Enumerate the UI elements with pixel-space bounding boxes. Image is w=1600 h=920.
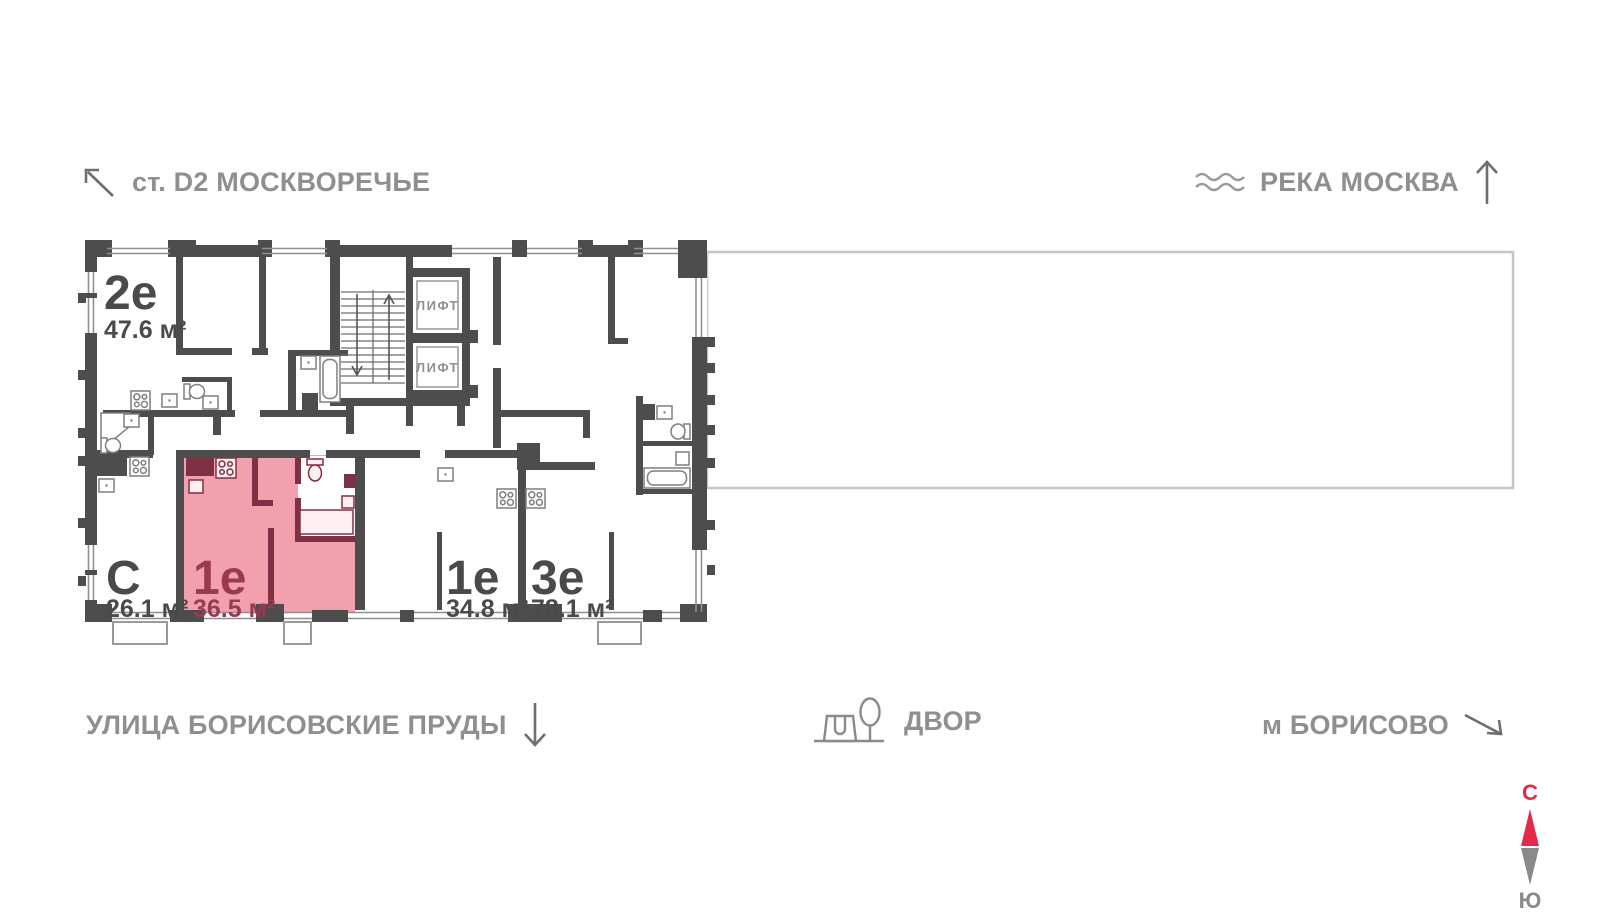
bath-icon [300, 510, 353, 534]
river-annotation: РЕКА МОСКВА [1194, 160, 1501, 204]
window-bays [113, 622, 641, 644]
unit-area: 34.8 м² [446, 595, 528, 623]
compass-needle-icon [1519, 807, 1541, 887]
washer-icon [342, 496, 354, 508]
unit-area: 36.5 м² [193, 595, 275, 623]
yard-annotation: ДВОР [812, 696, 982, 746]
metro-label: м БОРИСОВО [1262, 710, 1449, 741]
toilet-icon [101, 438, 121, 453]
yard-icon [812, 696, 886, 746]
bath-icon [644, 468, 690, 488]
compass: С Ю [1502, 782, 1558, 912]
street-label: УЛИЦА БОРИСОВСКИЕ ПРУДЫ [86, 710, 507, 741]
elevator-2: ЛИФТ [416, 347, 459, 387]
arrow-down-icon [521, 701, 549, 749]
adjacent-building-outline [707, 252, 1513, 488]
arrow-up-left-icon [80, 164, 118, 200]
stove-icon [216, 458, 236, 478]
arrow-down-right-icon [1463, 709, 1505, 741]
elevator-1-label: ЛИФТ [416, 298, 459, 313]
bath-icon [320, 356, 340, 402]
washer-icon [676, 452, 689, 465]
station-label: ст. D2 МОСКВОРЕЧЬЕ [132, 167, 430, 198]
compass-north-label: С [1522, 782, 1538, 804]
arrow-up-icon [1473, 158, 1501, 206]
toilet-icon [184, 384, 205, 399]
river-waves-icon [1194, 168, 1246, 196]
unit-area: 47.6 м² [104, 316, 186, 344]
elevator-1: ЛИФТ [416, 281, 459, 329]
floor-plan-svg: ЛИФТ ЛИФТ [0, 0, 1600, 920]
floorplan-page: ЛИФТ ЛИФТ [0, 0, 1600, 920]
compass-south-label: Ю [1519, 890, 1542, 912]
yard-label: ДВОР [904, 706, 982, 737]
toilet-icon [671, 424, 690, 439]
unit-area: 78.1 м² [531, 595, 613, 623]
sink-icon [189, 480, 203, 493]
street-annotation: УЛИЦА БОРИСОВСКИЕ ПРУДЫ [86, 703, 549, 747]
toilet-icon [307, 459, 323, 481]
unit-type: 2е [104, 267, 157, 320]
station-annotation: ст. D2 МОСКВОРЕЧЬЕ [80, 160, 430, 204]
unit-area: 26.1 м² [106, 595, 188, 623]
river-label: РЕКА МОСКВА [1260, 167, 1459, 198]
metro-annotation: м БОРИСОВО [1262, 703, 1505, 747]
elevator-2-label: ЛИФТ [416, 360, 459, 375]
